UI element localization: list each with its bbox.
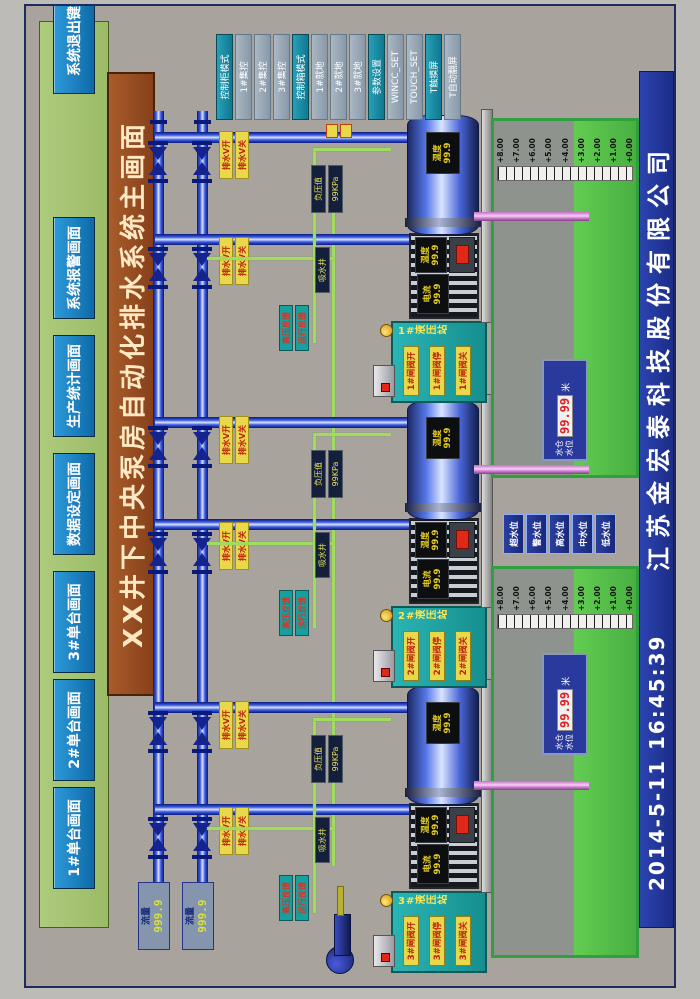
vacuum-value-tag: 99KPa <box>328 165 343 213</box>
suction-pipe-3 <box>474 781 589 790</box>
gate-valve-icon <box>149 717 167 745</box>
stop-button[interactable] <box>456 531 469 550</box>
company-name: 江苏金宏泰科技股份有限公司 <box>639 142 674 571</box>
valve-flange <box>148 855 168 859</box>
mode-2-local[interactable]: 2#就地 <box>330 34 347 120</box>
run-feedback-tag: 运行反馈 <box>295 305 309 351</box>
valve-flange <box>148 749 168 753</box>
gate-valve-stop-button[interactable]: 1#闸阀停 <box>429 346 445 396</box>
gate-valve-icon <box>193 717 211 745</box>
water-level-display: 水仓水位 99.99 米 <box>542 359 588 461</box>
level-button-mid[interactable]: 中水位 <box>572 514 593 554</box>
valve-open-tag: 排水V开 <box>219 522 233 570</box>
vacuum-value-tag: 99KPa <box>328 450 343 498</box>
menu-3-single-screen[interactable]: 3#单台画面 <box>53 571 95 673</box>
valve-open-tag: 排水V开 <box>219 701 233 749</box>
hydraulic-station-box: 1#闸阀开 1#闸阀停 1#闸阀关 1#液压站 <box>391 321 487 403</box>
valve-flange <box>192 285 212 289</box>
valve-flange <box>192 749 212 753</box>
level-button-column: 超水位 警水位 高水位 中水位 低水位 <box>503 514 618 554</box>
gate-valve-icon <box>149 823 167 851</box>
pump-unit-3: 排水V开 排水V关 排水V开 排水V关 高压反馈 运行反馈 吸水井 负压值 99… <box>131 673 491 973</box>
valve-flange <box>192 141 212 145</box>
mode-1-central[interactable]: 1#集控 <box>235 34 252 120</box>
level-scale-labels: +8.00 +7.00 +6.00 +5.00 +4.00 +3.00 +2.0… <box>494 137 636 163</box>
gate-valve-icon <box>193 147 211 175</box>
motor-body: 电流99.9 温度99.9 <box>409 518 479 604</box>
stop-button[interactable] <box>456 246 469 265</box>
gate-valve-icon <box>149 538 167 566</box>
level-scale-labels: +8.00 +7.00 +6.00 +5.00 +4.00 +3.00 +2.0… <box>494 585 636 611</box>
suction-pipe-1 <box>474 212 589 221</box>
status-lamp-icon <box>380 609 393 622</box>
datetime-display: 2014-5-11 16:45:39 <box>645 635 669 891</box>
hv-feedback-tag: 高压反馈 <box>279 590 293 636</box>
level-button-warn[interactable]: 警水位 <box>526 514 547 554</box>
gate-valve-open-button[interactable]: 3#闸阀开 <box>403 916 419 966</box>
gate-valve-icon <box>193 432 211 460</box>
menu-2-single-screen[interactable]: 2#单台画面 <box>53 679 95 781</box>
motor-temp-readout: 温度99.9 <box>415 237 447 273</box>
valve-close-tag: 排水V关 <box>235 807 249 855</box>
level-button-low[interactable]: 低水位 <box>595 514 616 554</box>
footer-bar: 2014-5-11 16:45:39 江苏金宏泰科技股份有限公司 <box>639 71 674 928</box>
gate-valve-stop-button[interactable]: 2#闸阀停 <box>429 631 445 681</box>
mode-3-central[interactable]: 3#集控 <box>273 34 290 120</box>
pump-body: 温度99.9 <box>407 115 479 235</box>
signal-line <box>313 433 391 436</box>
pump-temp-readout: 温度99.9 <box>426 417 460 459</box>
valve-status-tags: 排水V开 排水V关 <box>219 522 251 570</box>
valve-flange <box>148 532 168 536</box>
mode-cabinet[interactable]: 控制柜模式 <box>216 34 233 120</box>
pump-unit-1: 排水V开 排水V关 排水V开 排水V关 高压反馈 运行反馈 吸水井 负压值 99… <box>131 103 491 403</box>
vacuum-label-tag: 负压值 <box>311 165 326 213</box>
valve-flange <box>148 711 168 715</box>
valve-flange <box>148 141 168 145</box>
motor-body: 电流99.9 温度99.9 <box>409 233 479 319</box>
run-feedback-tag: 运行反馈 <box>295 590 309 636</box>
power-indicator <box>381 668 390 677</box>
valve-flange <box>192 855 212 859</box>
auto-flip-button[interactable]: T自动翻屏 <box>444 34 461 120</box>
suction-well-tag: 吸水井 <box>315 532 330 578</box>
water-sump-1: +8.00 +7.00 +6.00 +5.00 +4.00 +3.00 +2.0… <box>491 118 639 478</box>
pump-temp-readout: 温度99.9 <box>426 702 460 744</box>
mode-2-central[interactable]: 2#集控 <box>254 34 271 120</box>
valve-status-tags: 排水V开 排水V关 <box>219 807 251 855</box>
motor-body: 电流99.9 温度99.9 <box>409 803 479 889</box>
valve-flange <box>192 532 212 536</box>
gate-valve-icon <box>149 432 167 460</box>
gate-valve-stop-button[interactable]: 3#闸阀停 <box>429 916 445 966</box>
menu-1-single-screen[interactable]: 1#单台画面 <box>53 787 95 889</box>
valve-flange <box>148 464 168 468</box>
hydraulic-station-box: 3#闸阀开 3#闸阀停 3#闸阀关 3#液压站 <box>391 891 487 973</box>
valve-flange <box>148 426 168 430</box>
motor-temp-readout: 温度99.9 <box>415 807 447 843</box>
level-ruler <box>497 614 633 629</box>
hydraulic-pump-icon <box>373 935 395 967</box>
pump-temp-readout: 温度99.9 <box>426 132 460 174</box>
menu-system-alarm-screen[interactable]: 系统报警画面 <box>53 217 95 319</box>
motor-temp-readout: 温度99.9 <box>415 522 447 558</box>
hv-feedback-tag: 高压反馈 <box>279 875 293 921</box>
valve-open-tag: 排水V开 <box>219 807 233 855</box>
water-level-unit: 米 <box>559 677 572 686</box>
gate-valve-close-button[interactable]: 2#闸阀关 <box>455 631 471 681</box>
mode-1-local[interactable]: 1#就地 <box>311 34 328 120</box>
menu-production-stats-screen[interactable]: 生产统计画面 <box>53 335 95 437</box>
feedback-tags: 高压反馈 运行反馈 <box>279 305 311 351</box>
vacuum-tags: 负压值 99KPa <box>311 165 345 213</box>
valve-flange <box>192 711 212 715</box>
gate-valve-icon <box>149 147 167 175</box>
valve-flange <box>192 247 212 251</box>
valve-open-tag: 排水V开 <box>219 237 233 285</box>
valve-close-tag: 排水V关 <box>235 701 249 749</box>
valve-open-tag: 排水V开 <box>219 131 233 179</box>
valve-close-tag: 排水V关 <box>235 131 249 179</box>
motor-switch-box <box>449 237 475 273</box>
vacuum-label-tag: 负压值 <box>311 735 326 783</box>
hv-feedback-tag: 高压反馈 <box>279 305 293 351</box>
valve-close-tag: 排水V关 <box>235 237 249 285</box>
valve-close-tag: 排水V关 <box>235 416 249 464</box>
param-setting-button[interactable]: 参数设置 <box>368 34 385 120</box>
motor-switch-box <box>449 522 475 558</box>
valve-flange <box>148 247 168 251</box>
valve-status-tags: 排水V开 排水V关 <box>219 701 251 749</box>
valve-status-tags: 排水V开 排水V关 <box>219 237 251 285</box>
vacuum-tags: 负压值 99KPa <box>311 450 345 498</box>
pump-flange <box>405 218 481 227</box>
alarm-chip <box>340 124 352 138</box>
valve-open-tag: 排水V开 <box>219 416 233 464</box>
gate-valve-open-button[interactable]: 2#闸阀开 <box>403 631 419 681</box>
valve-flange <box>192 817 212 821</box>
mode-panel: 控制柜模式 1#集控 2#集控 3#集控 控制箱模式 1#就地 2#就地 3#就… <box>216 34 463 120</box>
pump-flange <box>405 503 481 512</box>
photo-frame: 1#单台画面 2#单台画面 3#单台画面 数据设定画面 生产统计画面 系统报警画… <box>24 8 674 988</box>
drop-pipe <box>155 234 409 245</box>
auxiliary-pump-icon <box>318 904 368 974</box>
hydraulic-station-label: 3#液压站 <box>398 894 448 909</box>
feedback-tags: 高压反馈 运行反馈 <box>279 875 311 921</box>
level-button-over[interactable]: 超水位 <box>503 514 524 554</box>
valve-flange <box>148 285 168 289</box>
suction-pipe-2 <box>474 465 589 474</box>
power-indicator <box>381 383 390 392</box>
touchscreen-button[interactable]: T触摸屏 <box>425 34 442 120</box>
mode-box[interactable]: 控制箱模式 <box>292 34 309 120</box>
water-level-display: 水仓水位 99.99 米 <box>542 653 588 755</box>
gate-valve-close-button[interactable]: 3#闸阀关 <box>455 916 471 966</box>
valve-flange <box>192 179 212 183</box>
system-exit-button[interactable]: 系统退出键 <box>53 4 95 94</box>
gate-valve-open-button[interactable]: 1#闸阀开 <box>403 346 419 396</box>
hydraulic-station-box: 2#闸阀开 2#闸阀停 2#闸阀关 2#液压站 <box>391 606 487 688</box>
vacuum-label-tag: 负压值 <box>311 450 326 498</box>
vacuum-tags: 负压值 99KPa <box>311 735 345 783</box>
power-indicator <box>381 953 390 962</box>
valve-flange <box>192 426 212 430</box>
valve-close-tag: 排水V关 <box>235 522 249 570</box>
valve-flange <box>148 179 168 183</box>
alarm-chip <box>326 124 338 138</box>
water-level-value: 99.99 <box>557 689 573 731</box>
motor-current-readout: 电流99.9 <box>417 844 449 884</box>
drop-pipe <box>155 519 409 530</box>
suction-well-tag: 吸水井 <box>315 817 330 863</box>
menu-data-setting-screen[interactable]: 数据设定画面 <box>53 453 95 555</box>
run-feedback-tag: 运行反馈 <box>295 875 309 921</box>
hydraulic-pump-icon <box>373 365 395 397</box>
signal-line <box>313 718 391 721</box>
motor-current-readout: 电流99.9 <box>417 559 449 599</box>
hydraulic-station-label: 2#液压站 <box>398 609 448 624</box>
valve-status-tags: 排水V开 排水V关 <box>219 416 251 464</box>
status-lamp-icon <box>380 894 393 907</box>
water-level-unit: 米 <box>559 383 572 392</box>
main-menu-bar: 1#单台画面 2#单台画面 3#单台画面 数据设定画面 生产统计画面 系统报警画… <box>39 21 109 928</box>
feedback-tags: 高压反馈 运行反馈 <box>279 590 311 636</box>
level-ruler <box>497 166 633 181</box>
stop-button[interactable] <box>456 816 469 835</box>
touch-set-button[interactable]: TOUCH_SET <box>406 34 423 120</box>
signal-line <box>313 148 391 151</box>
valve-flange <box>148 817 168 821</box>
mode-3-local[interactable]: 3#就地 <box>349 34 366 120</box>
water-level-value: 99.99 <box>557 395 573 437</box>
valve-flange <box>192 570 212 574</box>
valve-flange <box>192 464 212 468</box>
gate-valve-close-button[interactable]: 1#闸阀关 <box>455 346 471 396</box>
wincc-set-button[interactable]: WINCC_SET <box>387 34 404 120</box>
hmi-screen: 1#单台画面 2#单台画面 3#单台画面 数据设定画面 生产统计画面 系统报警画… <box>24 4 676 988</box>
status-lamp-icon <box>380 324 393 337</box>
pump-body: 温度99.9 <box>407 685 479 805</box>
valve-status-tags: 排水V开 排水V关 <box>219 131 251 179</box>
water-sump-2: +8.00 +7.00 +6.00 +5.00 +4.00 +3.00 +2.0… <box>491 566 639 958</box>
valve-flange <box>148 570 168 574</box>
motor-current-readout: 电流99.9 <box>417 274 449 314</box>
pump-body: 温度99.9 <box>407 400 479 520</box>
gate-valve-icon <box>149 253 167 281</box>
pump-unit-2: 排水V开 排水V关 排水V开 排水V关 高压反馈 运行反馈 吸水井 负压值 99… <box>131 388 491 688</box>
motor-switch-box <box>449 807 475 843</box>
vacuum-value-tag: 99KPa <box>328 735 343 783</box>
hydraulic-pump-icon <box>373 650 395 682</box>
hydraulic-station-label: 1#液压站 <box>398 324 448 339</box>
pump-flange <box>405 788 481 797</box>
suction-well-tag: 吸水井 <box>315 247 330 293</box>
level-button-high[interactable]: 高水位 <box>549 514 570 554</box>
drop-pipe <box>155 804 409 815</box>
